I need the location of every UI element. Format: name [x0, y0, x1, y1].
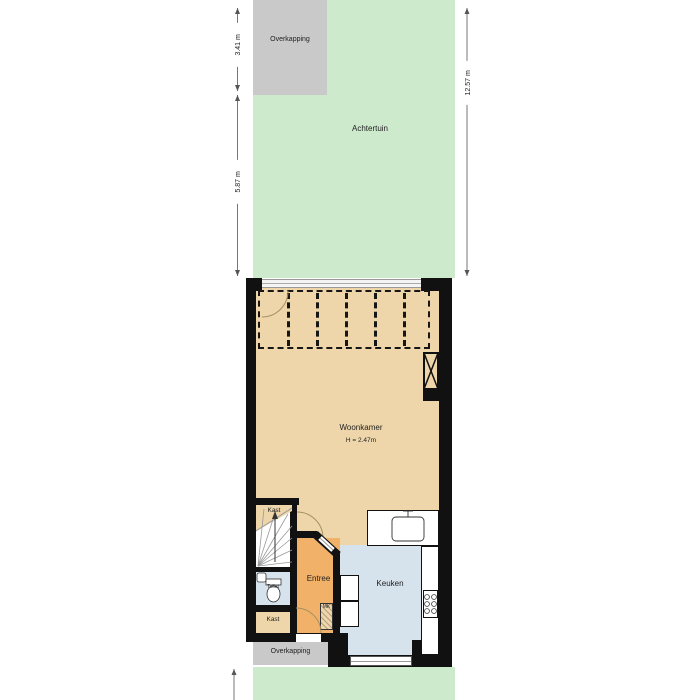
kitchen-counter-top	[367, 510, 439, 546]
closet-lower-label: Kast	[256, 616, 290, 623]
wall-bottom-corner-left	[328, 633, 348, 667]
wall-right	[439, 278, 452, 667]
canopy-top-area	[253, 0, 327, 95]
wall-closet-upper-top	[246, 498, 299, 505]
overhang-divider	[403, 293, 406, 346]
front-garden-strip	[253, 667, 455, 700]
canopy-top-label: Overkapping	[253, 36, 327, 44]
back-garden-label: Achtertuin	[330, 125, 410, 134]
overhang-divider	[345, 293, 348, 346]
garden-facade-window	[262, 279, 421, 288]
shaft-box	[423, 352, 439, 390]
dimension-left-upper: 3.41 m	[235, 23, 243, 67]
closet-upper-label: Kast	[256, 507, 292, 514]
wall-stairs-toilet	[256, 567, 297, 572]
front-door-opening	[296, 634, 321, 642]
overhang-divider	[374, 293, 377, 346]
overhang-divider	[287, 293, 290, 346]
kitchen-window	[350, 656, 412, 666]
entry-label: Entree	[297, 575, 340, 584]
kitchen-appliance-1	[340, 575, 359, 601]
living-room-label: Woonkamer	[311, 424, 411, 433]
stove	[423, 590, 438, 618]
living-room-height-label: H = 2.47m	[311, 437, 411, 444]
overhang-divider	[316, 293, 319, 346]
dimension-right: 12.57 m	[465, 61, 473, 105]
floor-plan: Overkapping Achtertuin	[0, 0, 700, 700]
wall-shaft-stub	[423, 390, 452, 401]
kitchen-appliance-2	[340, 601, 359, 627]
kitchen-label: Keuken	[360, 580, 420, 589]
dimension-left-lower: 5.87 m	[235, 160, 243, 204]
toilet-label: Toilet	[254, 585, 292, 591]
meter-closet-label: MK	[320, 605, 333, 611]
wall-toilet-closet	[256, 605, 297, 612]
stairs-area	[256, 505, 292, 567]
wall-entry-top	[297, 531, 317, 538]
wall-entry-kitchen	[333, 551, 340, 633]
canopy-bottom-label: Overkapping	[253, 648, 328, 656]
